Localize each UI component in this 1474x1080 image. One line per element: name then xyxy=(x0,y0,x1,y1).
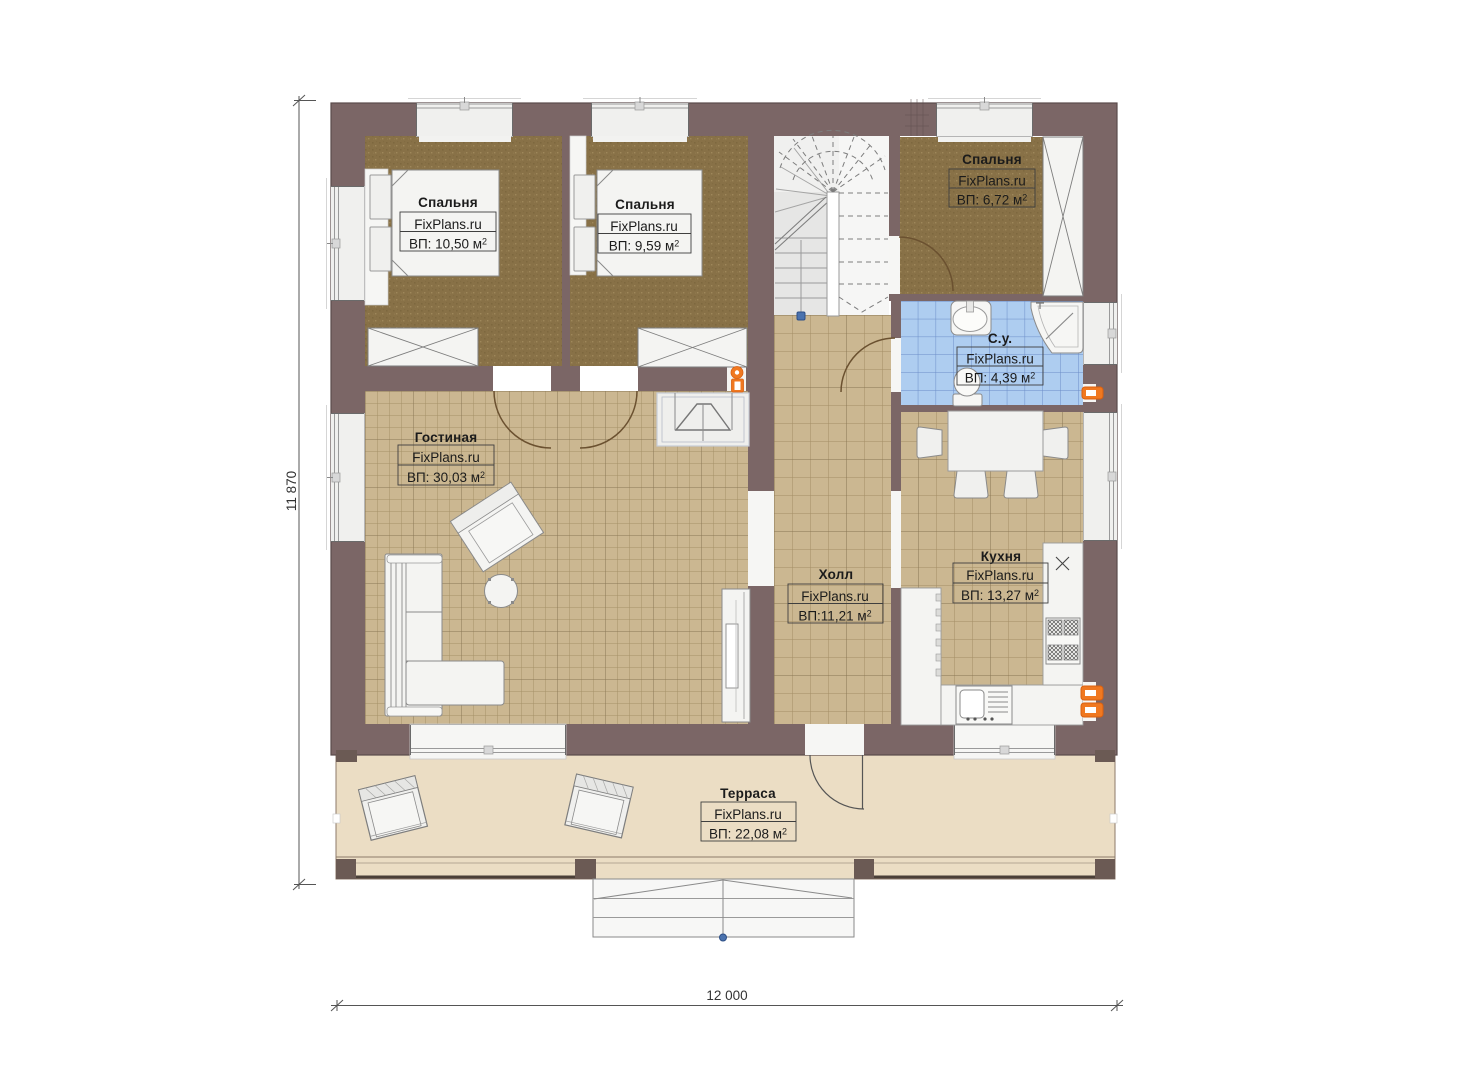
svg-text:С.у.: С.у. xyxy=(988,331,1012,346)
svg-text:FixPlans.ru: FixPlans.ru xyxy=(801,589,869,604)
svg-text:ВП: 30,03 м2: ВП: 30,03 м2 xyxy=(407,470,485,485)
svg-text:FixPlans.ru: FixPlans.ru xyxy=(966,352,1034,367)
svg-text:FixPlans.ru: FixPlans.ru xyxy=(966,568,1034,583)
svg-text:Гостиная: Гостиная xyxy=(415,430,478,445)
svg-text:ВП: 6,72 м2: ВП: 6,72 м2 xyxy=(957,193,1028,208)
svg-text:Спальня: Спальня xyxy=(418,195,478,210)
svg-text:ВП: 13,27 м2: ВП: 13,27 м2 xyxy=(961,588,1039,603)
svg-text:FixPlans.ru: FixPlans.ru xyxy=(610,219,678,234)
svg-text:11 870: 11 870 xyxy=(284,471,299,511)
svg-text:FixPlans.ru: FixPlans.ru xyxy=(714,807,782,822)
svg-text:Кухня: Кухня xyxy=(981,549,1021,564)
svg-text:ВП: 22,08 м2: ВП: 22,08 м2 xyxy=(709,827,787,842)
svg-text:Холл: Холл xyxy=(819,567,854,582)
svg-text:Терраса: Терраса xyxy=(720,786,776,801)
svg-text:ВП: 9,59 м2: ВП: 9,59 м2 xyxy=(609,239,680,254)
svg-text:ВП:11,21 м2: ВП:11,21 м2 xyxy=(798,609,871,624)
svg-text:Спальня: Спальня xyxy=(962,152,1022,167)
svg-text:ВП: 4,39 м2: ВП: 4,39 м2 xyxy=(965,371,1036,386)
svg-text:12 000: 12 000 xyxy=(706,988,747,1003)
svg-text:Спальня: Спальня xyxy=(615,197,675,212)
svg-text:FixPlans.ru: FixPlans.ru xyxy=(414,217,482,232)
svg-text:FixPlans.ru: FixPlans.ru xyxy=(412,450,480,465)
svg-text:FixPlans.ru: FixPlans.ru xyxy=(958,174,1026,189)
svg-text:ВП: 10,50 м2: ВП: 10,50 м2 xyxy=(409,237,487,252)
